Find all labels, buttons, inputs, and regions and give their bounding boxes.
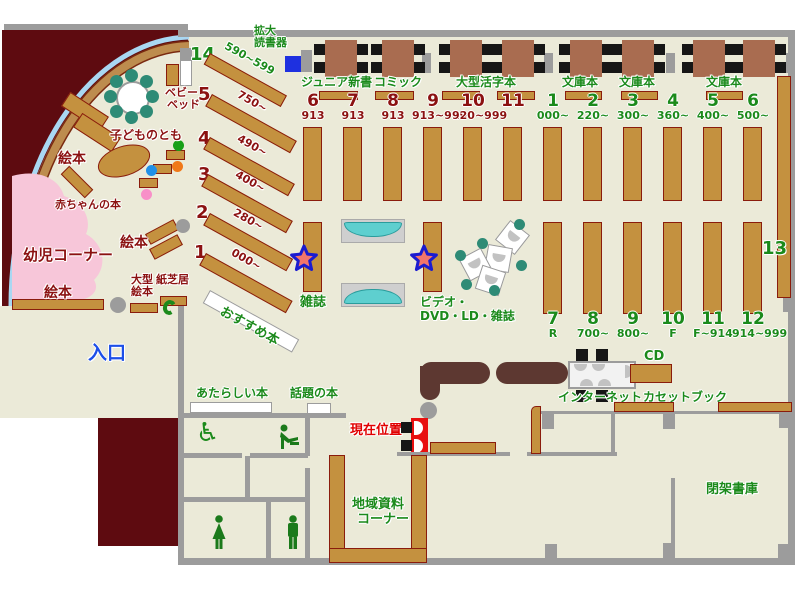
stack-shelf — [623, 222, 642, 314]
internet-chair — [596, 349, 608, 361]
local-corner-label-1: 地域資料 — [352, 498, 404, 512]
stack-4: 4360~ — [652, 93, 694, 122]
ehon-mid-label: 絵本 — [120, 236, 148, 251]
pillar — [779, 413, 790, 428]
magnifier-device — [285, 56, 301, 72]
stack-10: 10920~999 — [452, 93, 494, 122]
stack-shelf — [743, 127, 762, 201]
reading-table — [371, 40, 425, 77]
service-counter — [496, 362, 568, 384]
shelf — [430, 442, 496, 454]
shelf — [718, 402, 792, 412]
star-icon — [288, 243, 320, 275]
stack-7: 7913 — [332, 93, 374, 122]
stack-shelf — [663, 222, 682, 314]
stack-shelf — [703, 127, 722, 201]
shelf — [531, 406, 541, 454]
stack-shelf — [463, 127, 482, 201]
baby-bed-shelf — [166, 64, 179, 86]
local-shelf-bottom — [329, 548, 427, 563]
stack-6: 6913 — [292, 93, 334, 122]
stack-2: 2220~ — [572, 93, 614, 122]
junior-label: ジュニア新書 — [301, 76, 372, 89]
closed-stacks-label: 閉架書庫 — [706, 483, 758, 497]
library-floor-map: 入口 絵本 絵本 絵本 赤ちゃんの本 子どものとも 幼児コーナー ベビー ベッド… — [0, 0, 800, 600]
reading-table — [611, 40, 665, 77]
stack-7a: 7R — [532, 311, 574, 340]
pillar — [110, 297, 126, 313]
stack-shelf — [703, 222, 722, 314]
stool — [477, 238, 488, 249]
wall — [184, 453, 242, 458]
stool — [455, 250, 466, 261]
magnifier-label-2: 読書器 — [254, 37, 287, 49]
wall — [245, 456, 250, 498]
stack-11: 11 — [492, 93, 534, 110]
kids-chair — [140, 105, 153, 118]
kids-chair — [140, 75, 153, 88]
pillar — [663, 413, 675, 429]
stack-shelf — [303, 127, 322, 201]
video-label-2: DVD・LD・雑誌 — [420, 310, 515, 323]
pillar — [783, 298, 795, 312]
bench — [341, 283, 405, 307]
stack-shelf — [423, 127, 442, 201]
bench — [341, 219, 405, 243]
step-block — [166, 150, 185, 160]
pillar — [778, 544, 790, 559]
ehon-bottom-label: 絵本 — [44, 286, 72, 301]
stack-shelf — [543, 127, 562, 201]
baby-change-icon — [278, 424, 300, 450]
wall-topleft — [4, 24, 188, 30]
stool — [514, 219, 525, 230]
bunko-label: 文庫本 — [706, 76, 742, 89]
cassette-shelf — [614, 402, 674, 412]
cushion-orange — [172, 161, 183, 172]
outside-area-entrance — [98, 418, 178, 546]
stack-9: 9913~919 — [412, 93, 454, 122]
magnifier-label-1: 拡大 — [254, 25, 276, 37]
stool — [489, 285, 500, 296]
reading-table — [314, 40, 368, 77]
stack-shelf — [543, 222, 562, 314]
kids-chair — [104, 90, 117, 103]
kids-chair — [110, 75, 123, 88]
video-label-1: ビデオ・ — [420, 296, 468, 309]
cushion-pink — [141, 189, 152, 200]
comic-label: コミック — [374, 76, 422, 89]
stack-shelf — [503, 127, 522, 201]
stack-10a: 10F — [652, 311, 694, 340]
stack-12a: 12914~999 — [732, 311, 774, 340]
stack-9a: 9800~ — [612, 311, 654, 340]
wall — [250, 453, 308, 458]
local-shelf-right — [411, 455, 427, 563]
entrance-label: 入口 — [88, 344, 126, 364]
local-shelf-left — [329, 455, 345, 563]
topic-books-label: 話題の本 — [290, 387, 338, 400]
stack-shelf — [383, 127, 402, 201]
bigbook-shelf — [130, 303, 158, 313]
you-are-here-label: 現在位置 — [350, 424, 402, 438]
large-print-label: 大型活字本 — [456, 76, 516, 89]
kodomonotomo-label: 子どものとも — [110, 129, 182, 142]
bunko-label: 文庫本 — [562, 76, 598, 89]
pillar — [420, 402, 437, 419]
stack-shelf — [343, 127, 362, 201]
stack-8a: 8700~ — [572, 311, 614, 340]
pillar — [666, 53, 675, 73]
pillar — [301, 50, 312, 72]
reading-table — [559, 40, 613, 77]
stack-11a: 11F~914 — [692, 311, 734, 340]
wall — [305, 418, 310, 456]
stack-13: 13 — [762, 240, 787, 259]
baby-books-label: 赤ちゃんの本 — [55, 199, 121, 211]
baby-bed-label-2: ベッド — [167, 99, 200, 111]
wall — [266, 502, 271, 560]
stack-shelf — [623, 127, 642, 201]
pillar — [176, 219, 190, 233]
stack-13-shelf — [777, 76, 791, 298]
stack-8: 8913 — [372, 93, 414, 122]
stack-shelf — [583, 127, 602, 201]
cushion-blue — [146, 165, 157, 176]
new-books-shelf — [190, 402, 272, 413]
man-icon — [285, 515, 301, 551]
marker-chair — [401, 422, 412, 433]
reading-table — [682, 40, 736, 77]
stack-5: 5400~ — [692, 93, 734, 122]
marker-chair — [401, 440, 412, 451]
stack-6a: 6500~ — [732, 93, 774, 122]
local-corner-label-2: コーナー — [357, 513, 409, 527]
wheelchair-icon: ♿ — [196, 420, 219, 447]
stack-shelf — [743, 222, 762, 314]
stack-1: 1000~ — [532, 93, 574, 122]
kids-chair — [125, 69, 138, 82]
pillar — [544, 53, 553, 73]
kids-chair — [110, 105, 123, 118]
stool — [516, 260, 527, 271]
service-counter — [420, 366, 440, 400]
wall — [305, 468, 310, 563]
kids-chair — [146, 90, 159, 103]
toddler-corner-label: 幼児コーナー — [23, 248, 113, 264]
step-block — [139, 178, 158, 188]
pillar — [663, 543, 675, 559]
kamishibai-label: 紙芝居 — [156, 274, 189, 286]
star-icon — [408, 243, 440, 275]
internet-chair — [576, 349, 588, 361]
wall — [184, 497, 308, 502]
topic-books-shelf — [307, 403, 331, 414]
reading-table — [732, 40, 786, 77]
woman-icon — [211, 515, 227, 551]
stack-shelf — [583, 222, 602, 314]
reading-table — [439, 40, 493, 77]
pillar — [786, 53, 795, 73]
kids-chair — [125, 111, 138, 124]
reading-table — [491, 40, 545, 77]
bigbook-label-1: 大型 — [131, 274, 153, 286]
baby-bed-label-1: ベビー — [165, 87, 198, 99]
pillar — [542, 413, 554, 429]
cd-label: CD — [644, 350, 664, 364]
magazines-label: 雑誌 — [300, 296, 326, 310]
cd-shelf — [630, 364, 672, 383]
wall-left — [178, 296, 184, 565]
bigbook-label-2: 絵本 — [131, 286, 153, 298]
bunko-label: 文庫本 — [619, 76, 655, 89]
stack-3: 3300~ — [612, 93, 654, 122]
wall — [611, 414, 615, 454]
ehon-top-label: 絵本 — [58, 152, 86, 167]
new-books-label: あたらしい本 — [196, 387, 268, 400]
stool — [461, 279, 472, 290]
stack-shelf — [663, 127, 682, 201]
pillar — [545, 544, 557, 559]
